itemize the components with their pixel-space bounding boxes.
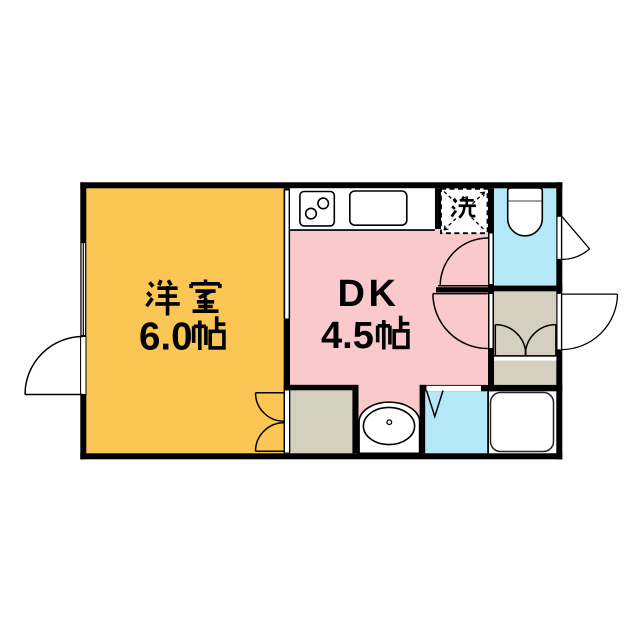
svg-text:DK: DK: [338, 273, 400, 315]
svg-text:4.5: 4.5: [321, 315, 374, 357]
svg-text:6.0: 6.0: [139, 316, 193, 359]
